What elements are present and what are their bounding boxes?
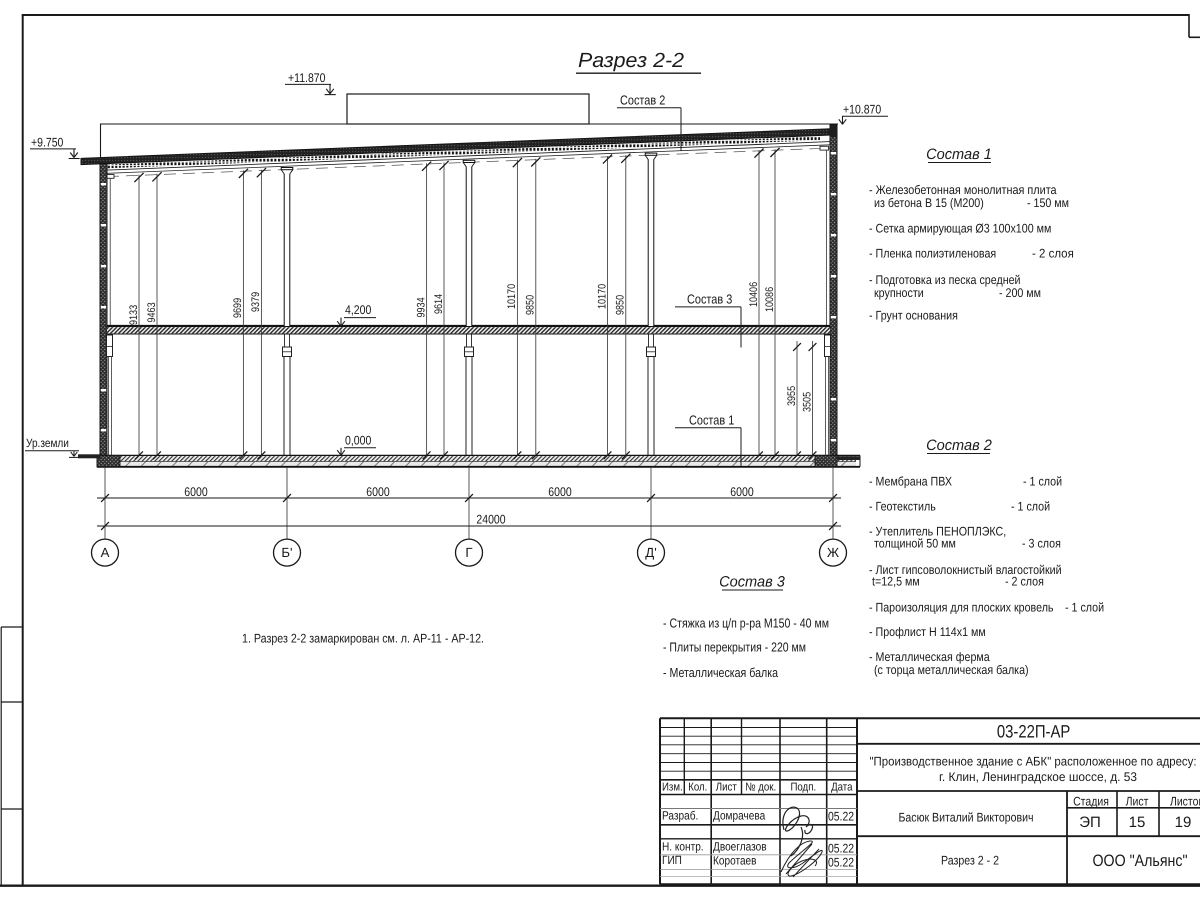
svg-text:- Металлическая балка: - Металлическая балка	[663, 665, 779, 680]
svg-text:Коротаев: Коротаев	[713, 854, 757, 868]
svg-text:- 2 слоя: - 2 слоя	[1005, 575, 1044, 589]
svg-text:- Пленка полиэтиленовая: - Пленка полиэтиленовая	[869, 247, 996, 261]
svg-text:3955: 3955	[786, 386, 798, 406]
svg-text:ООО "Альянс": ООО "Альянс"	[1093, 852, 1188, 870]
svg-text:- Подготовка из песка средней: - Подготовка из песка средней	[869, 273, 1021, 287]
svg-text:9379: 9379	[250, 292, 262, 312]
svg-text:Ж: Ж	[827, 545, 839, 560]
svg-text:- Сетка армирующая Ø3 100х100: - Сетка армирующая Ø3 100х100 мм	[869, 222, 1051, 236]
svg-text:1. Разрез 2-2 замаркирован см.: 1. Разрез 2-2 замаркирован см. л. АР-11 …	[242, 632, 484, 646]
svg-text:Д': Д'	[645, 545, 656, 560]
svg-text:Состав 2: Состав 2	[620, 93, 665, 108]
svg-text:9934: 9934	[415, 297, 427, 317]
svg-text:- Грунт основания: - Грунт основания	[869, 309, 958, 323]
svg-text:4,200: 4,200	[345, 303, 371, 317]
svg-text:толщиной 50 мм: толщиной 50 мм	[874, 537, 956, 551]
svg-text:05.22: 05.22	[828, 841, 854, 855]
svg-text:Состав 1: Состав 1	[689, 413, 734, 428]
svg-text:- Плиты перекрытия - 220 мм: - Плиты перекрытия - 220 мм	[663, 640, 806, 655]
svg-text:6000: 6000	[366, 485, 389, 499]
svg-text:Г: Г	[465, 545, 472, 560]
svg-text:"Производственное здание с АБК: "Производственное здание с АБК" располож…	[870, 755, 1197, 769]
svg-text:ГИП: ГИП	[662, 853, 682, 867]
svg-text:05.22: 05.22	[828, 855, 854, 869]
svg-text:- Профлист Н 114х1 мм: - Профлист Н 114х1 мм	[869, 625, 986, 639]
svg-text:- 2 слоя: - 2 слоя	[1032, 247, 1074, 261]
svg-text:03-22П-АР: 03-22П-АР	[997, 722, 1071, 742]
svg-text:- Стяжка из ц/п р-ра М150 - 40: - Стяжка из ц/п р-ра М150 - 40 мм	[663, 616, 829, 631]
svg-text:t=12,5 мм: t=12,5 мм	[872, 575, 920, 589]
svg-text:- Мембрана ПВХ: - Мембрана ПВХ	[869, 475, 953, 489]
svg-text:0,000: 0,000	[345, 433, 371, 447]
svg-text:10086: 10086	[764, 287, 776, 312]
svg-text:- Железобетонная монолитная п: - Железобетонная монолитная плита	[869, 183, 1057, 197]
svg-text:Изм.: Изм.	[662, 782, 683, 794]
svg-text:Разраб.: Разраб.	[662, 809, 698, 823]
svg-text:10170: 10170	[596, 284, 608, 309]
svg-text:Домрачева: Домрачева	[713, 809, 765, 823]
svg-text:Разрез 2 - 2: Разрез 2 - 2	[941, 854, 999, 868]
svg-text:г. Клин, Ленинградское шоссе,: г. Клин, Ленинградское шоссе, д. 53	[939, 770, 1137, 784]
svg-text:9699: 9699	[232, 298, 244, 318]
svg-text:крупности: крупности	[874, 286, 924, 300]
svg-text:Подп.: Подп.	[790, 782, 816, 794]
svg-text:9850: 9850	[615, 295, 627, 315]
svg-text:19: 19	[1175, 814, 1192, 831]
svg-text:05.22: 05.22	[828, 809, 854, 823]
svg-text:№ док.: № док.	[745, 782, 776, 794]
svg-text:Н. контр.: Н. контр.	[662, 840, 704, 854]
svg-text:Лист: Лист	[1126, 795, 1149, 809]
svg-text:Дата: Дата	[831, 782, 853, 794]
svg-text:6000: 6000	[548, 485, 571, 499]
svg-text:- 200 мм: - 200 мм	[999, 286, 1041, 300]
svg-text:- 1 слой: - 1 слой	[1011, 500, 1050, 514]
svg-text:6000: 6000	[730, 485, 753, 499]
svg-text:- 150 мм: - 150 мм	[1027, 196, 1069, 210]
svg-text:ЭП: ЭП	[1079, 814, 1101, 831]
svg-text:Состав 3: Состав 3	[687, 292, 732, 307]
svg-text:Басюк Виталий Викторович: Басюк Виталий Викторович	[899, 811, 1034, 825]
svg-text:Разрез 2-2: Разрез 2-2	[578, 49, 685, 72]
svg-text:3505: 3505	[801, 392, 813, 412]
svg-text:24000: 24000	[476, 513, 505, 527]
svg-text:9133: 9133	[128, 305, 140, 325]
svg-text:9463: 9463	[146, 302, 158, 322]
svg-text:10170: 10170	[506, 284, 518, 309]
svg-text:Листов: Листов	[1170, 795, 1200, 809]
svg-text:10406: 10406	[748, 282, 760, 307]
svg-text:+11.870: +11.870	[288, 71, 326, 85]
svg-text:- Металлическая ферма: - Металлическая ферма	[869, 650, 990, 664]
svg-text:15: 15	[1129, 814, 1146, 831]
svg-text:Состав 1: Состав 1	[926, 146, 992, 163]
svg-text:Кол.: Кол.	[688, 782, 707, 794]
svg-text:9614: 9614	[433, 294, 445, 314]
svg-text:9850: 9850	[525, 295, 537, 315]
svg-text:А: А	[101, 545, 110, 560]
svg-text:Б': Б'	[281, 545, 292, 560]
svg-text:- 1 слой: - 1 слой	[1065, 601, 1104, 615]
svg-text:- 1 слой: - 1 слой	[1023, 475, 1062, 489]
svg-text:Состав 2: Состав 2	[926, 437, 992, 454]
svg-text:Лист: Лист	[716, 782, 738, 794]
svg-text:Состав 3: Состав 3	[719, 574, 785, 591]
svg-text:- Пароизоляция для плоских кро: - Пароизоляция для плоских кровель	[869, 601, 1054, 615]
svg-text:Ур.земли: Ур.земли	[26, 436, 69, 450]
svg-text:- 3 слоя: - 3 слоя	[1022, 537, 1061, 551]
svg-text:Стадия: Стадия	[1073, 795, 1109, 809]
svg-text:(с торца металлическая балка): (с торца металлическая балка)	[874, 663, 1029, 677]
svg-text:+10.870: +10.870	[843, 103, 881, 117]
svg-text:из бетона В 15 (М200): из бетона В 15 (М200)	[874, 196, 984, 210]
svg-text:6000: 6000	[184, 485, 207, 499]
svg-text:Двоеглазов: Двоеглазов	[713, 840, 767, 854]
svg-text:- Геотекстиль: - Геотекстиль	[869, 500, 936, 514]
svg-text:+9.750: +9.750	[31, 136, 63, 150]
